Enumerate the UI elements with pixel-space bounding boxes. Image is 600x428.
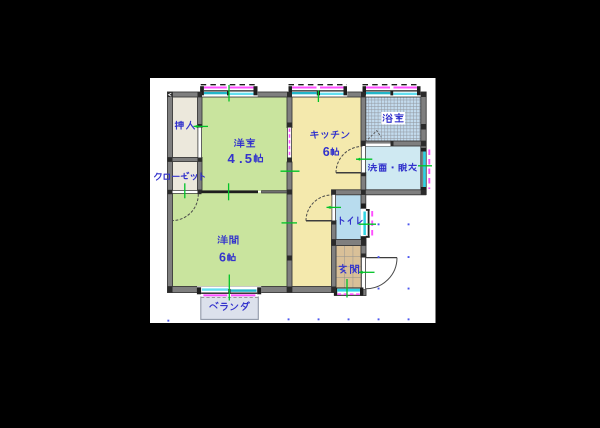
svg-text:4: 4 (228, 151, 236, 166)
svg-text:6: 6 (219, 251, 226, 265)
svg-text:5: 5 (245, 151, 252, 166)
svg-text:6: 6 (323, 145, 330, 159)
svg-text:.: . (239, 151, 243, 166)
